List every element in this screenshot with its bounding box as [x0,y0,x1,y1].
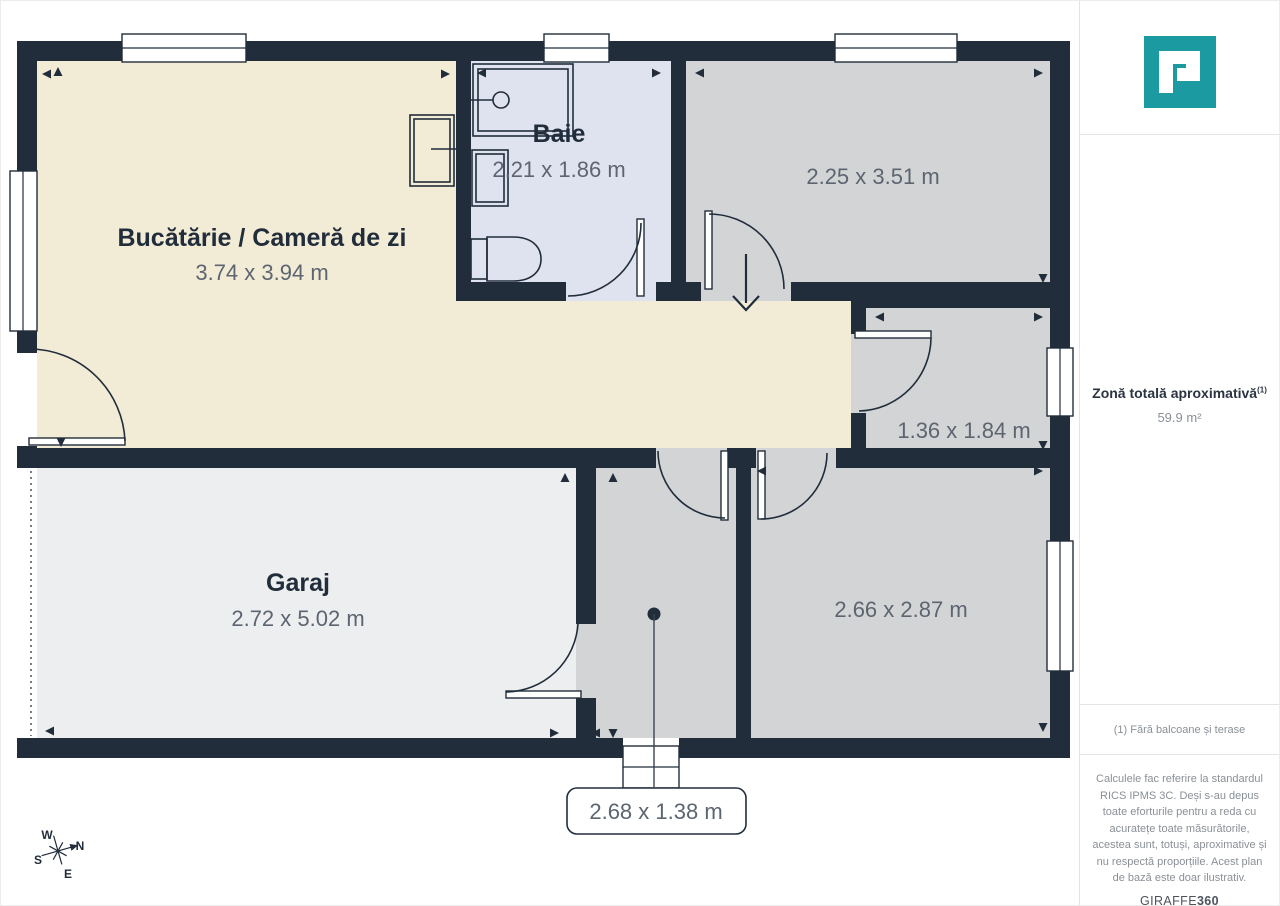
compass-south-label: S [34,853,42,867]
logo-section [1080,1,1279,135]
window-icon [1047,541,1073,671]
footnote-section: (1) Fără balcoane și terase [1080,704,1279,754]
garage-floor [37,468,576,738]
kitchen-dims: 3.74 x 3.94 m [195,260,328,285]
info-sidebar: Zonă totală aproximativă(1) 59.9 m² (1) … [1079,1,1279,906]
agency-logo-icon [1144,36,1216,108]
total-area-title: Zonă totală aproximativă(1) [1080,385,1279,401]
garage-name: Garaj [266,569,330,597]
total-area-value: 59.9 m² [1080,410,1279,425]
entry-hall-dimension-callout: 2.68 x 1.38 m [567,788,746,834]
bath-name: Baie [533,120,586,148]
compass-east-label: E [64,867,72,881]
compass-north-label: N [76,839,85,853]
floorplan-page: Bucătărie / Cameră de zi 3.74 x 3.94 m B… [0,0,1280,906]
window-icon [835,34,957,62]
garage-dims: 2.72 x 5.02 m [231,606,364,631]
window-icon [623,746,679,788]
compass-west-label: W [41,828,53,842]
corridor-floor [596,468,736,738]
entry-hall-dims: 2.68 x 1.38 m [589,799,722,824]
window-icon [10,171,37,331]
bottom-right-dims: 2.66 x 2.87 m [834,597,967,622]
bath-dims: 2.21 x 1.86 m [492,157,625,182]
compass-icon: W N S E [34,828,84,881]
window-icon [1047,348,1073,416]
giraffe360-brand: GIRAFFE360 [1080,894,1279,906]
footnote-text: (1) Fără balcoane și terase [1114,724,1245,736]
small-right-dims: 1.36 x 1.84 m [897,418,1030,443]
floorplan-drawing: Bucătărie / Cameră de zi 3.74 x 3.94 m B… [1,1,1081,906]
footnote-marker: (1) [1257,385,1267,394]
disclaimer-text: Calculele fac referire la standardul RIC… [1090,771,1269,887]
area-section: Zonă totală aproximativă(1) 59.9 m² [1080,135,1279,704]
top-right-dims: 2.25 x 3.51 m [806,164,939,189]
window-icon [544,34,609,62]
legal-section: Calculele fac referire la standardul RIC… [1080,754,1279,906]
window-icon [122,34,246,62]
floorplan: Bucătărie / Cameră de zi 3.74 x 3.94 m B… [1,1,1081,906]
kitchen-name: Bucătărie / Cameră de zi [117,224,406,252]
